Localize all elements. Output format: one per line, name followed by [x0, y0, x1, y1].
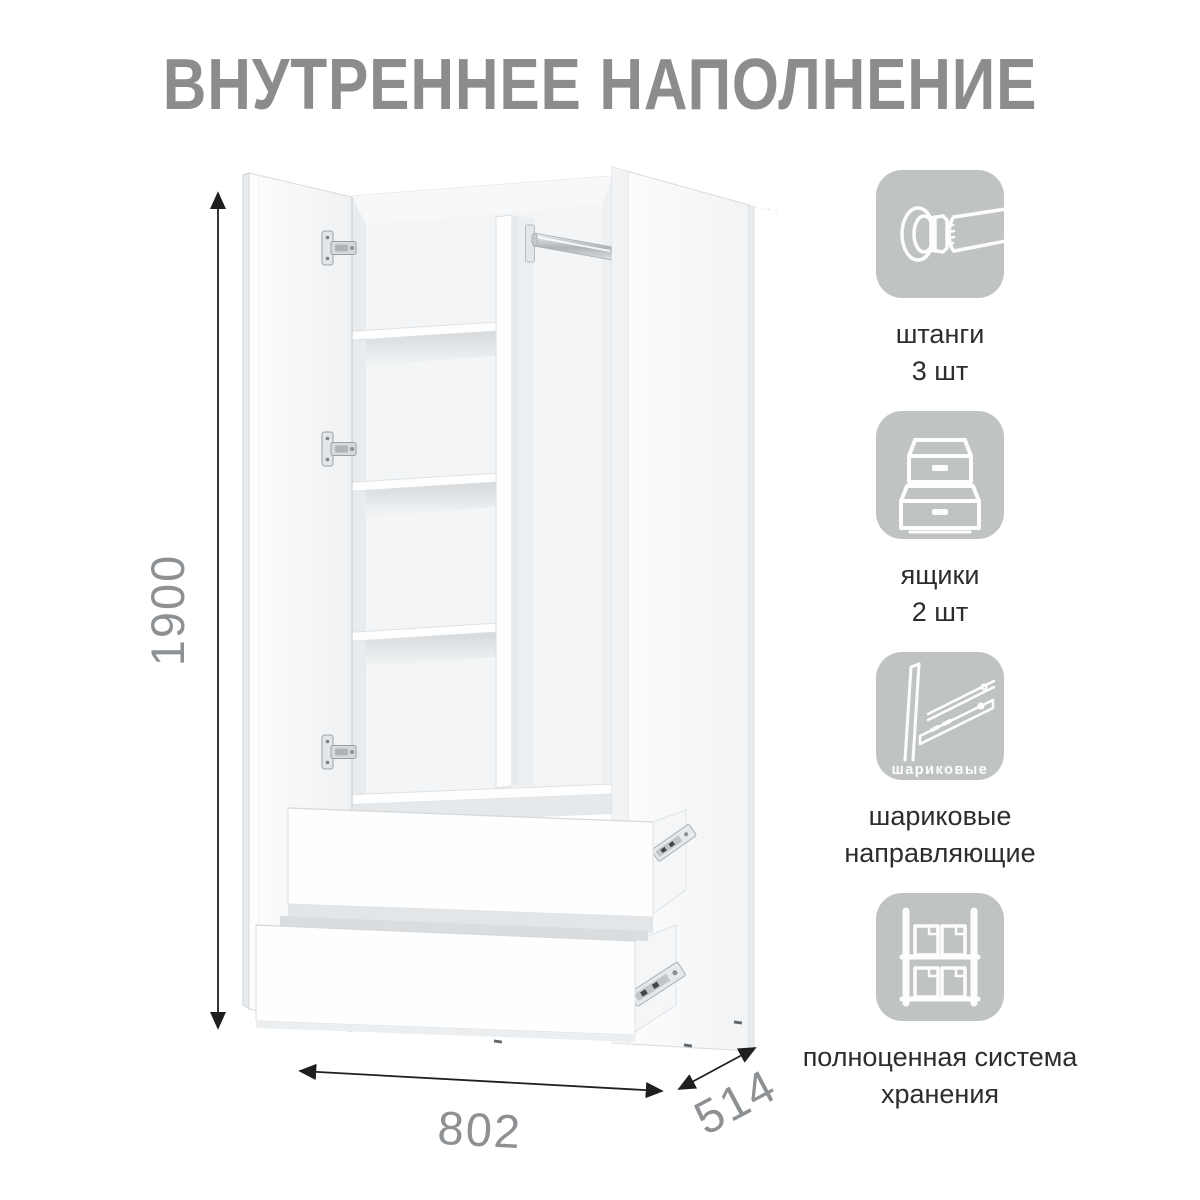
feature-label-line: 2 шт	[901, 594, 980, 631]
feature-label: полноценная система хранения	[803, 1039, 1078, 1113]
feature-rods: штанги 3 шт	[790, 170, 1090, 411]
feature-list: штанги 3 шт ящики 2 шт	[790, 170, 1090, 1134]
feature-label-line: направляющие	[844, 835, 1035, 872]
feature-label-line: 3 шт	[896, 353, 985, 390]
icon-caption: шариковые	[892, 762, 989, 778]
feature-label-line: ящики	[901, 557, 980, 594]
feature-label: ящики 2 шт	[901, 557, 980, 631]
clothes-rod-icon	[876, 170, 1004, 298]
divider-panel	[496, 215, 518, 788]
feature-label: штанги 3 шт	[896, 316, 985, 390]
feature-slides: шариковые шариковые направляющие	[790, 652, 1090, 893]
feature-storage: полноценная система хранения	[790, 893, 1090, 1134]
feature-label-line: штанги	[896, 316, 985, 353]
drawer-lower	[256, 916, 686, 1042]
width-value: 802	[436, 1101, 523, 1158]
feature-label-line: хранения	[803, 1076, 1078, 1113]
page-title: ВНУТРЕННЕЕ НАПОЛНЕНИЕ	[96, 44, 1104, 126]
drawer-upper	[288, 808, 697, 917]
drawers-icon	[876, 411, 1004, 539]
depth-value: 514	[686, 1058, 785, 1144]
depth-dimension: 514	[679, 1048, 785, 1145]
height-value: 1900	[141, 554, 194, 667]
feature-label-line: шариковые	[844, 798, 1035, 835]
width-dimension: 802	[300, 1071, 662, 1158]
feature-label-line: полноценная система	[803, 1039, 1078, 1076]
feature-drawers: ящики 2 шт	[790, 411, 1090, 652]
feature-label: шариковые направляющие	[844, 798, 1035, 872]
ball-bearing-slides-icon: шариковые	[876, 652, 1004, 780]
storage-system-icon	[876, 893, 1004, 1021]
cabinet-interior	[340, 176, 612, 825]
height-dimension: 1900	[141, 193, 218, 1028]
